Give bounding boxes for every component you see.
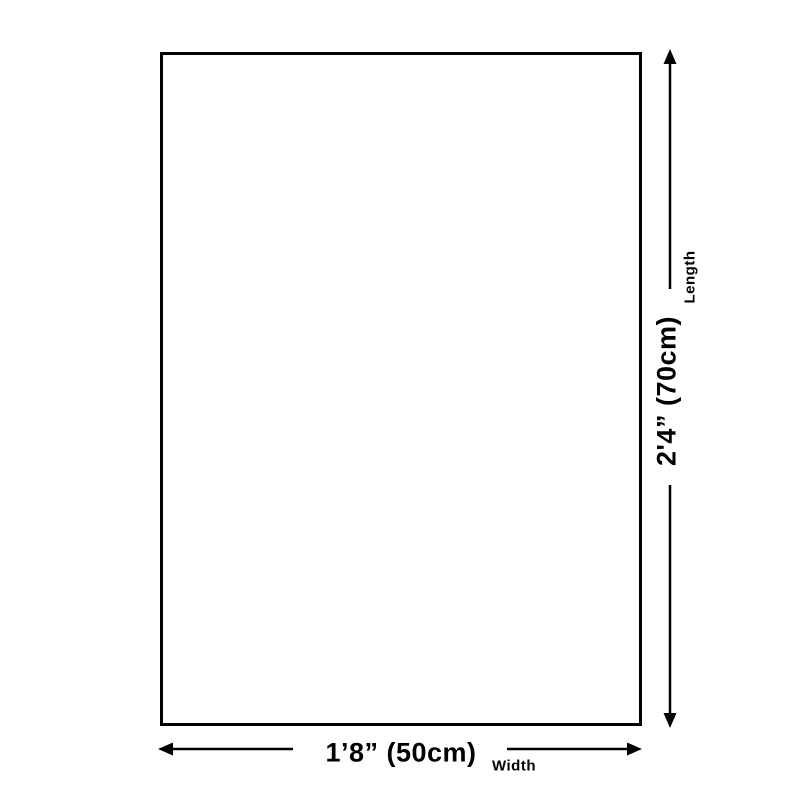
width-value: 1’8” (50cm) [325,738,476,769]
arrow-down-icon [664,713,677,728]
dimension-diagram: 2'4” (70cm) Length 1’8” (50cm) Width [0,0,800,800]
arrow-right-icon [627,743,642,756]
arrow-up-icon [664,49,677,64]
product-outline-box [162,54,641,725]
length-value: 2'4” (70cm) [652,316,683,466]
arrow-left-icon [158,743,173,756]
width-label: Width [492,758,536,775]
length-label: Length [682,251,699,304]
